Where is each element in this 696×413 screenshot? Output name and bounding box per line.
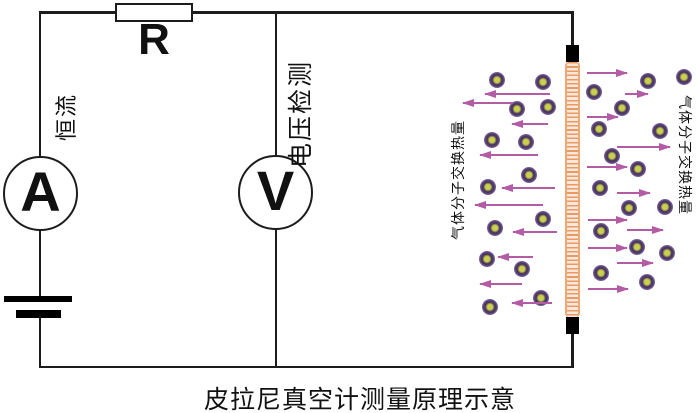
gas-molecule: [540, 99, 556, 115]
resistor-label: R: [115, 20, 193, 60]
gas-molecule: [518, 134, 534, 150]
heat-arrow-right: [588, 219, 627, 221]
heat-arrow-right: [617, 262, 653, 264]
heat-arrow-left: [513, 231, 557, 233]
heat-arrow-right: [588, 288, 628, 290]
wire-right-lower: [571, 332, 574, 368]
gas-label-right: 气体分子交换热量: [675, 95, 695, 215]
gas-molecule: [482, 299, 498, 315]
gas-molecule: [480, 179, 496, 195]
gas-molecule: [514, 261, 530, 277]
heat-arrow-right: [617, 192, 650, 194]
gas-molecule: [591, 121, 607, 137]
wire-left-middle: [39, 229, 41, 297]
heat-arrow-left: [502, 187, 555, 189]
wire-left-lower: [39, 316, 41, 368]
gas-molecule: [629, 239, 645, 255]
battery-long-plate: [4, 296, 72, 302]
heat-arrow-left: [498, 256, 533, 258]
heat-arrow-left: [475, 204, 543, 206]
gas-molecule: [659, 245, 675, 261]
gas-molecule: [535, 211, 551, 227]
heat-arrow-right: [625, 93, 648, 95]
gas-molecule: [593, 223, 609, 239]
label-constant-current: 恒流: [49, 93, 81, 141]
gas-molecule: [604, 148, 620, 164]
gas-molecule: [640, 73, 656, 89]
gas-molecule: [521, 167, 537, 183]
heat-arrow-right: [627, 229, 663, 231]
wire-voltmeter-upper: [275, 11, 277, 157]
wire-bottom: [39, 366, 574, 368]
heat-arrow-right: [587, 166, 627, 168]
gas-molecule: [630, 161, 646, 177]
wire-voltmeter-lower: [275, 228, 277, 368]
gas-molecule: [621, 200, 637, 216]
gas-label-left: 气体分子交换热量: [448, 120, 468, 240]
ammeter: A: [3, 156, 78, 231]
gas-molecule: [592, 180, 608, 196]
label-voltage-detection: 电压检测: [281, 60, 317, 168]
gas-molecule: [487, 220, 503, 236]
heat-arrow-right: [587, 116, 618, 118]
ammeter-label: A: [20, 164, 60, 220]
heat-arrow-left: [512, 302, 552, 304]
heat-arrow-left: [512, 123, 548, 125]
heat-arrow-left: [480, 283, 522, 285]
wire-right-upper: [571, 11, 574, 47]
gas-molecule: [489, 72, 505, 88]
gas-molecule: [676, 69, 692, 85]
filament-terminal-bottom: [566, 317, 579, 334]
heat-arrow-right: [617, 146, 670, 148]
gas-molecule: [652, 123, 668, 139]
gas-molecule: [586, 84, 602, 100]
heat-arrow-left: [485, 93, 550, 95]
gas-molecule: [484, 132, 500, 148]
gas-molecule: [593, 265, 609, 281]
gas-molecule: [639, 274, 655, 290]
battery-short-plate: [16, 310, 61, 318]
wire-left-upper: [39, 11, 41, 157]
gas-molecule: [535, 74, 551, 90]
filament-coil: [565, 62, 580, 317]
filament-terminal-top: [566, 45, 579, 62]
heat-arrow-left: [463, 102, 513, 104]
heat-arrow-left: [480, 154, 538, 156]
heat-arrow-right: [588, 247, 627, 249]
caption: 皮拉尼真空计测量原理示意: [204, 380, 516, 413]
gas-molecule: [657, 199, 673, 215]
voltmeter-label: V: [257, 163, 294, 219]
pirani-gauge-diagram: R A V 恒流 电压检测 气体分子交换热量 气体分子交换热量 皮拉尼真空计测量…: [0, 0, 696, 413]
gas-molecule: [479, 251, 495, 267]
heat-arrow-right: [587, 72, 627, 74]
